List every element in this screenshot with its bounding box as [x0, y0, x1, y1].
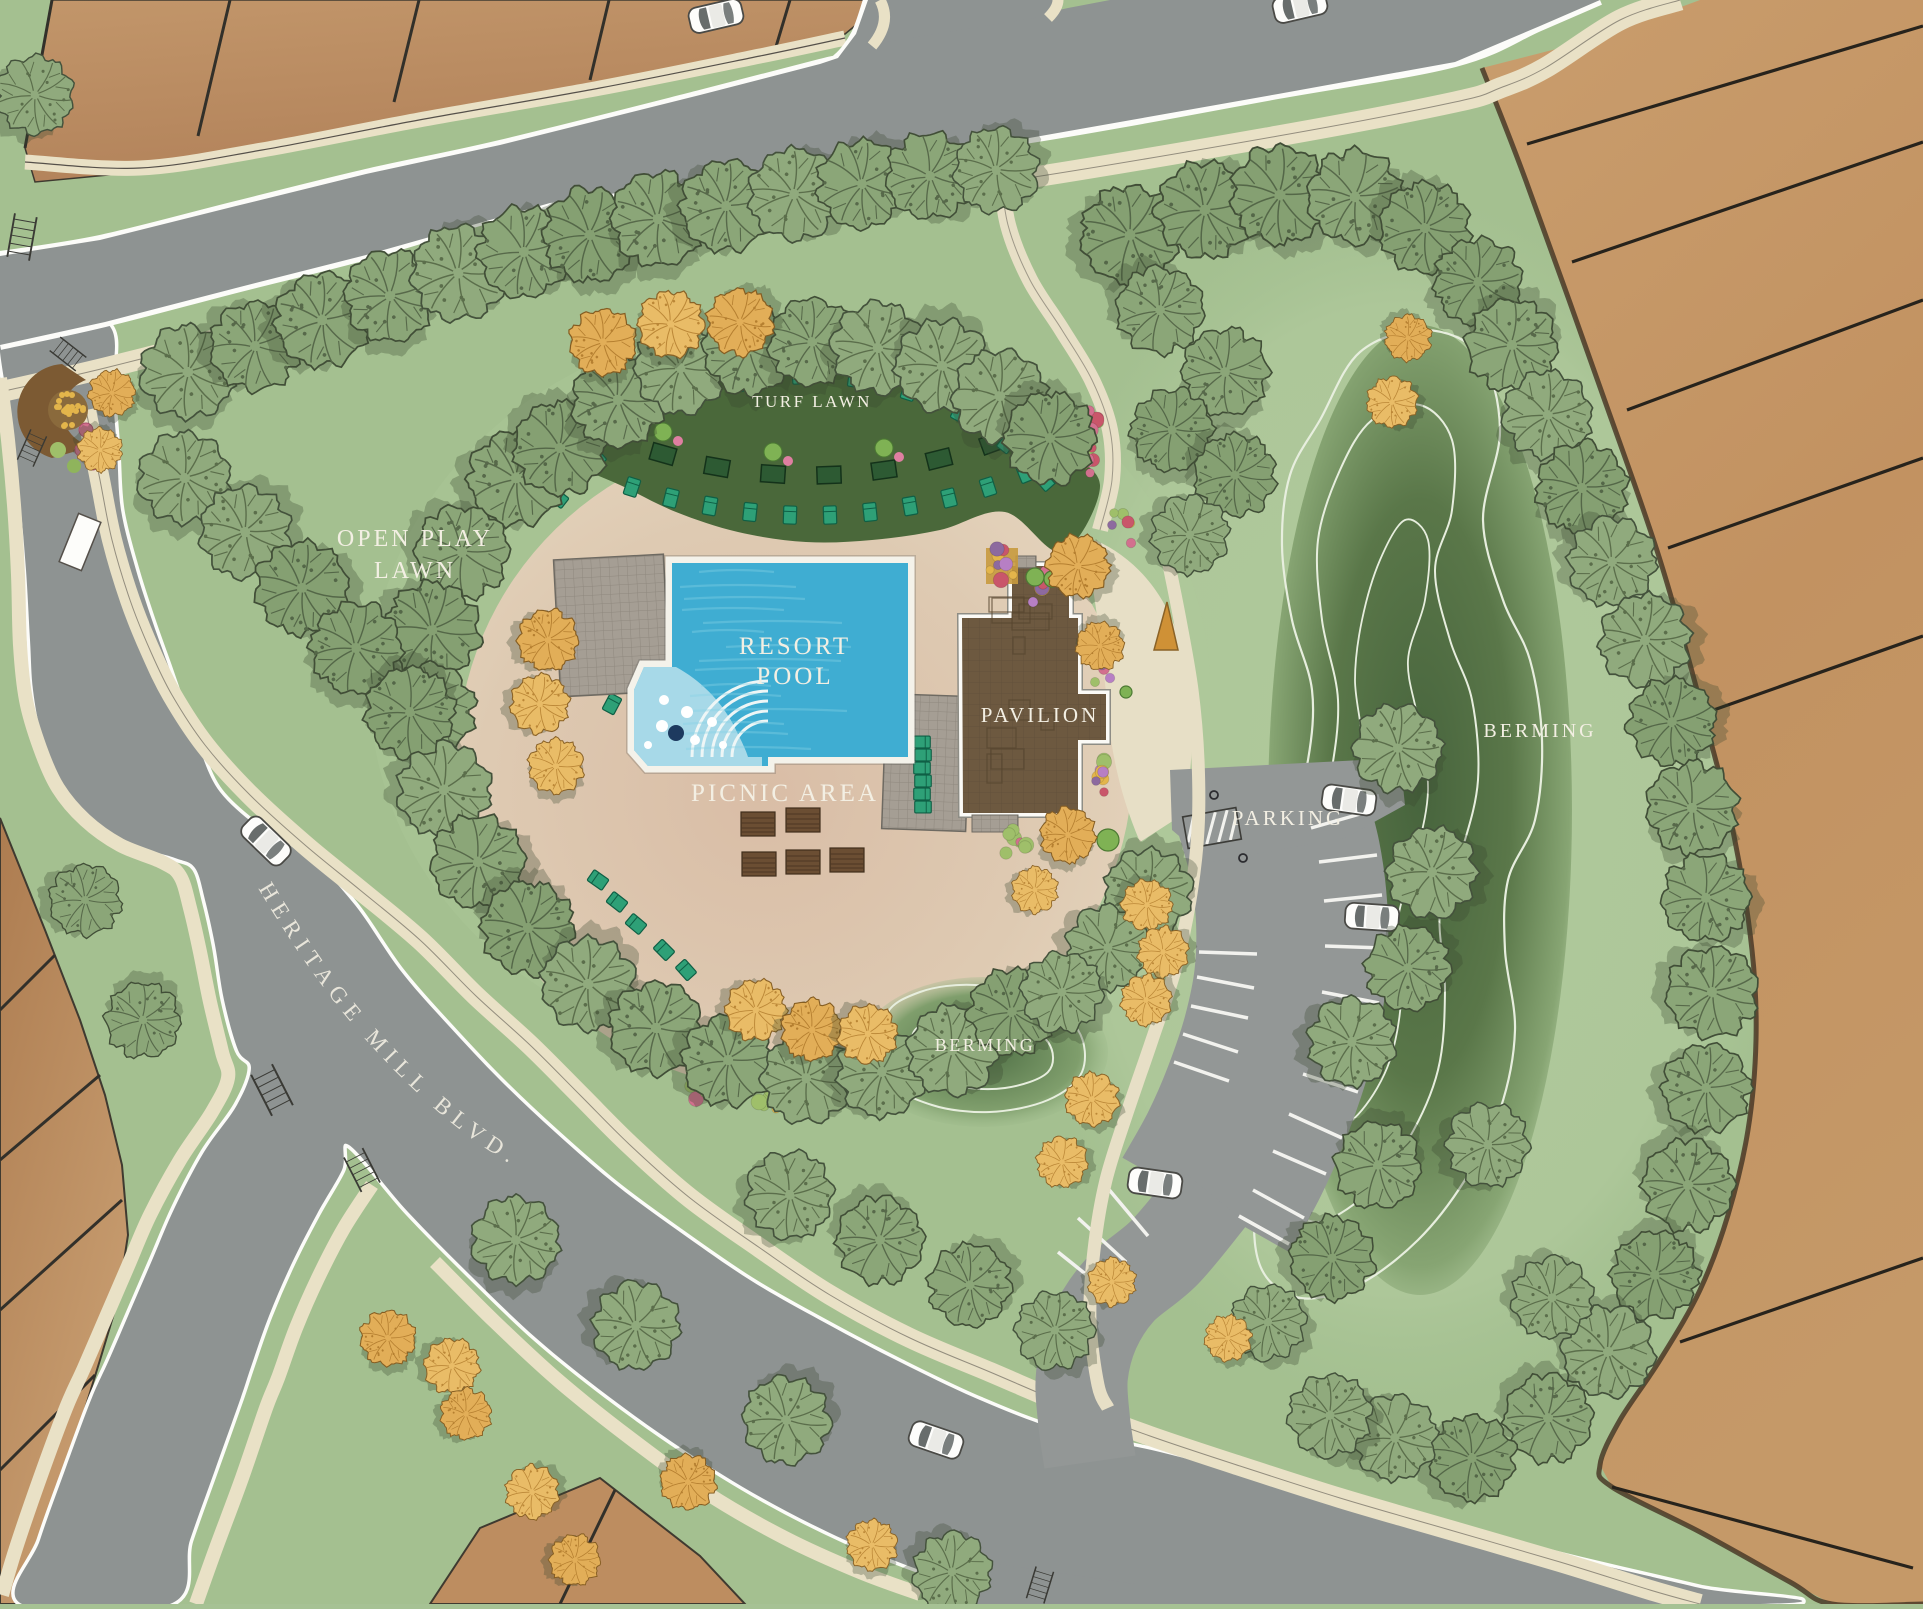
- svg-text:BERMING: BERMING: [935, 1035, 1036, 1055]
- svg-text:LAWN: LAWN: [374, 558, 456, 584]
- svg-text:PARKING: PARKING: [1232, 806, 1344, 830]
- svg-text:POOL: POOL: [756, 663, 833, 690]
- svg-text:RESORT: RESORT: [739, 633, 851, 660]
- svg-text:PICNIC AREA: PICNIC AREA: [691, 780, 879, 807]
- svg-text:TURF LAWN: TURF LAWN: [752, 392, 872, 411]
- svg-text:OPEN PLAY: OPEN PLAY: [337, 526, 493, 552]
- svg-text:PAVILION: PAVILION: [981, 703, 1100, 727]
- svg-text:BERMING: BERMING: [1483, 720, 1596, 742]
